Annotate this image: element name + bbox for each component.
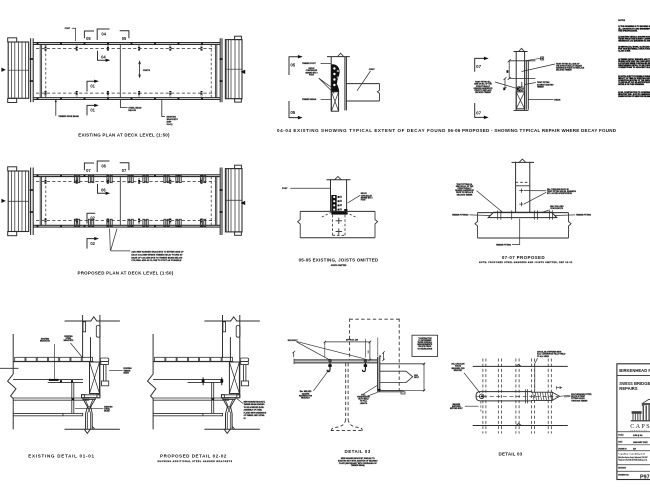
svg-text:1:50 @ A1: 1:50 @ A1 bbox=[633, 434, 643, 437]
svg-text:TIMBER BEAM BEARING: TIMBER BEAM BEARING bbox=[244, 403, 266, 406]
svg-text:07: 07 bbox=[476, 64, 481, 69]
svg-text:CONNECTIONS TO ADJACENT ELEMEN: CONNECTIONS TO ADJACENT ELEMENTS NOTED. bbox=[618, 66, 650, 69]
svg-text:BELOW: BELOW bbox=[128, 110, 136, 112]
svg-text:07: 07 bbox=[86, 168, 91, 173]
svg-text:COACH BOLTS: COACH BOLTS bbox=[550, 207, 564, 210]
svg-text:CAPS: CAPS bbox=[630, 423, 650, 430]
svg-text:COLUMN. ADD AS CLOSE TO POST A: COLUMN. ADD AS CLOSE TO POST AS POSSIBLE bbox=[131, 259, 182, 262]
svg-text:TIMBER: TIMBER bbox=[537, 86, 544, 88]
svg-text:BRACKETS: BRACKETS bbox=[40, 340, 51, 343]
svg-text:PLATES WITH UNDERSIDE: PLATES WITH UNDERSIDE bbox=[244, 411, 267, 414]
svg-text:JOISTS OMITTED: JOISTS OMITTED bbox=[331, 265, 347, 267]
svg-text:BEAM: BEAM bbox=[124, 371, 130, 374]
svg-text:05-05 EXISTING, JOISTS OMITTED: 05-05 EXISTING, JOISTS OMITTED bbox=[299, 258, 379, 263]
svg-text:TIMBER FITTINGS: TIMBER FITTINGS bbox=[452, 215, 469, 217]
svg-text:OF TIMBER. REF. DETAIL: OF TIMBER. REF. DETAIL bbox=[244, 414, 266, 417]
svg-text:01: 01 bbox=[90, 108, 95, 113]
svg-text:05: 05 bbox=[86, 36, 91, 41]
svg-text:BEAM: BEAM bbox=[554, 99, 560, 102]
svg-text:JANUARY 2021: JANUARY 2021 bbox=[633, 441, 648, 444]
svg-text:BRACKET: BRACKET bbox=[301, 397, 310, 400]
svg-text:Telephone & Fax 0151 653 3444: Telephone & Fax 0151 653 3444 info@caps.… bbox=[618, 459, 647, 461]
svg-text:THROUGH TIMBER: THROUGH TIMBER bbox=[571, 400, 588, 402]
svg-text:JOIST: JOIST bbox=[369, 69, 376, 71]
svg-text:TIMBER BEAM): TIMBER BEAM) bbox=[351, 464, 365, 467]
svg-text:Capolina Consulting Ltd: Capolina Consulting Ltd bbox=[618, 453, 645, 456]
svg-text:BEAM: BEAM bbox=[104, 410, 110, 413]
svg-text:REPAIRS: REPAIRS bbox=[619, 386, 638, 391]
svg-text:LENGTH: LENGTH bbox=[360, 403, 368, 405]
svg-text:CONSULTING: CONSULTING bbox=[630, 429, 647, 431]
svg-text:GEOMATICS LTD (DRAWING No 6889: GEOMATICS LTD (DRAWING No 6889/100). bbox=[618, 40, 650, 43]
svg-text:TO ALL SIDES: TO ALL SIDES bbox=[537, 355, 550, 358]
svg-text:NOTES: NOTES bbox=[618, 20, 626, 22]
svg-text:NOTE: PROPOSED STEEL HANGERS A: NOTE: PROPOSED STEEL HANGERS AND JOISTS … bbox=[479, 261, 573, 264]
svg-text:POST: POST bbox=[65, 28, 71, 30]
svg-text:CLASS 2 MIN.: CLASS 2 MIN. bbox=[618, 50, 631, 53]
svg-text:07: 07 bbox=[476, 110, 481, 115]
svg-text:03: 03 bbox=[244, 418, 246, 420]
svg-text:02: 02 bbox=[90, 215, 95, 220]
svg-text:PROPOSED DETAIL 02-02: PROPOSED DETAIL 02-02 bbox=[160, 454, 227, 459]
svg-text:DETAIL 03: DETAIL 03 bbox=[345, 449, 371, 454]
svg-text:DECAYED TIMBER: DECAYED TIMBER bbox=[457, 193, 473, 196]
svg-text:DETAILS ON THIS DRAWING.: DETAILS ON THIS DRAWING. bbox=[618, 83, 645, 86]
svg-text:EXISTING DETAIL 01-01: EXISTING DETAIL 01-01 bbox=[28, 454, 95, 459]
svg-text:04: 04 bbox=[101, 32, 106, 37]
svg-text:07-07 PROPOSED: 07-07 PROPOSED bbox=[502, 255, 546, 260]
svg-text:NEW HANGER BRACKET,: NEW HANGER BRACKET, bbox=[244, 400, 266, 403]
svg-text:04: 04 bbox=[101, 55, 106, 60]
svg-text:DETAIL 03: DETAIL 03 bbox=[499, 451, 523, 456]
svg-text:ADD NEW HANGER BRACKETS TO EIT: ADD NEW HANGER BRACKETS TO EITHER SIDE O… bbox=[131, 251, 184, 254]
svg-text:TIMBER FITTING: TIMBER FITTING bbox=[576, 215, 592, 217]
svg-text:DECAYED TIMBER: DECAYED TIMBER bbox=[556, 69, 572, 72]
svg-text:07: 07 bbox=[122, 168, 127, 173]
svg-text:100: 100 bbox=[368, 350, 370, 353]
svg-text:P97: P97 bbox=[640, 475, 650, 481]
svg-text:REVISION: REVISION bbox=[618, 467, 626, 469]
svg-text:01: 01 bbox=[90, 83, 95, 88]
svg-text:BRACKET: BRACKET bbox=[454, 369, 463, 372]
svg-text:THE SPECIFICATION.: THE SPECIFICATION. bbox=[618, 29, 638, 32]
svg-text:TIMBER BEAM: TIMBER BEAM bbox=[302, 98, 316, 101]
svg-text:TO FABRICATION: TO FABRICATION bbox=[417, 347, 432, 350]
svg-text:01-01): 01-01) bbox=[167, 124, 173, 126]
svg-text:ETC. AS PER SPECIFICATION: ETC. AS PER SPECIFICATION bbox=[547, 192, 573, 195]
svg-text:06-06 PROPOSED - SHOWING TYPIC: 06-06 PROPOSED - SHOWING TYPICAL REPAIR … bbox=[448, 128, 617, 133]
svg-text:TIMBER POST: TIMBER POST bbox=[302, 63, 316, 65]
svg-text:BASE OF COLUMN DUE TO TIMBER B: BASE OF COLUMN DUE TO TIMBER BEAM BELOW bbox=[131, 256, 182, 259]
svg-text:PROPOSED PLAN AT DECK LEVEL (1: PROPOSED PLAN AT DECK LEVEL (1:50) bbox=[78, 271, 174, 276]
svg-text:DECAYED TIMBER: DECAYED TIMBER bbox=[475, 91, 491, 94]
svg-text:TIMBER FITTING: TIMBER FITTING bbox=[496, 244, 512, 246]
svg-text:TO BE ACHIEVED IN RE-: TO BE ACHIEVED IN RE- bbox=[244, 406, 265, 409]
svg-text:TIMBER EDGE BEAM: TIMBER EDGE BEAM bbox=[58, 115, 79, 118]
svg-text:BEYOND BOLT: BEYOND BOLT bbox=[450, 408, 464, 410]
svg-text:06: 06 bbox=[101, 188, 106, 193]
svg-text:04-04 EXISTING SHOWING TYPICAL: 04-04 EXISTING SHOWING TYPICAL EXTENT OF… bbox=[277, 128, 446, 133]
svg-text:05: 05 bbox=[290, 110, 295, 115]
svg-text:JOISTS: JOISTS bbox=[143, 70, 151, 72]
svg-text:BIRKENHEAD PARK: BIRKENHEAD PARK bbox=[619, 368, 650, 373]
svg-text:05: 05 bbox=[290, 62, 295, 67]
svg-text:BRACKETS: BRACKETS bbox=[64, 339, 75, 342]
svg-text:02: 02 bbox=[90, 241, 95, 246]
svg-text:APPROX. 100: APPROX. 100 bbox=[346, 339, 358, 342]
svg-text:ASSEMBLY OF STEEL: ASSEMBLY OF STEEL bbox=[244, 409, 264, 412]
svg-text:06: 06 bbox=[101, 164, 106, 169]
svg-text:POST: POST bbox=[282, 188, 288, 190]
svg-text:05: 05 bbox=[122, 36, 127, 41]
svg-text:EACH COLUMN WHERE TIMBER DECAY: EACH COLUMN WHERE TIMBER DECAY FOUND AT bbox=[131, 253, 183, 256]
svg-text:FABRICATION OF BESPOKE ELEMENT: FABRICATION OF BESPOKE ELEMENTS. bbox=[618, 95, 650, 98]
svg-text:EXISTING PLAN AT DECK LEVEL (1: EXISTING PLAN AT DECK LEVEL (1:50) bbox=[78, 133, 170, 138]
svg-text:SHOWING ADDITIONAL STEEL HANGE: SHOWING ADDITIONAL STEEL HANGER BRACKETS bbox=[157, 460, 232, 463]
